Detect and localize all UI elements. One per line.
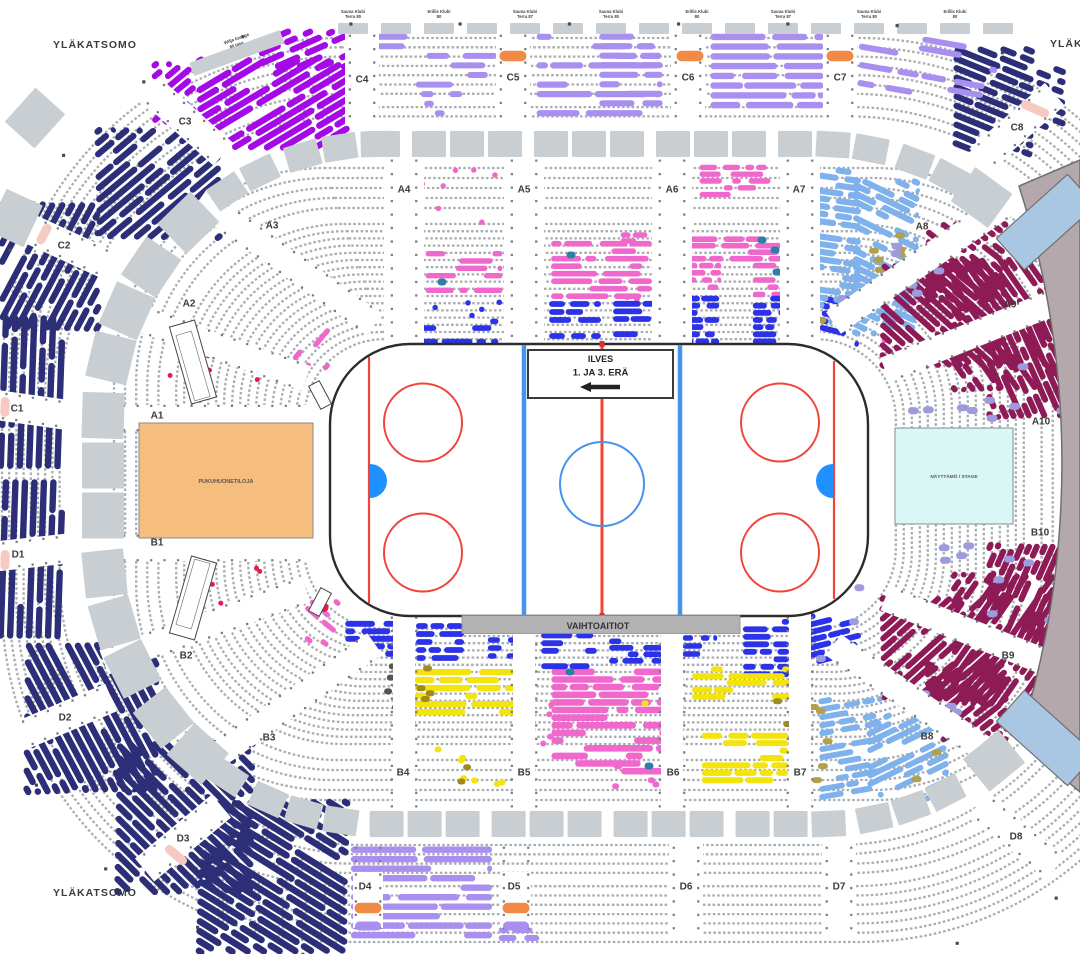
svg-text:D4: D4 bbox=[359, 882, 372, 893]
svg-text:D2: D2 bbox=[59, 713, 72, 724]
svg-text:D1: D1 bbox=[12, 550, 25, 561]
svg-text:D3: D3 bbox=[177, 834, 190, 845]
svg-text:C7: C7 bbox=[834, 73, 847, 84]
svg-text:D5: D5 bbox=[508, 882, 521, 893]
svg-text:A4: A4 bbox=[398, 185, 411, 196]
svg-text:C8: C8 bbox=[1011, 123, 1024, 134]
svg-text:D8: D8 bbox=[1010, 832, 1023, 843]
svg-text:C2: C2 bbox=[58, 241, 71, 252]
svg-text:VAIHTOAITIOT: VAIHTOAITIOT bbox=[567, 621, 630, 631]
svg-text:YLÄKATSOMO: YLÄKATSOMO bbox=[1050, 37, 1080, 50]
svg-text:Terra 80: Terra 80 bbox=[603, 14, 620, 19]
svg-text:Terra 87: Terra 87 bbox=[517, 14, 534, 19]
svg-text:1. JA 3. ERÄ: 1. JA 3. ERÄ bbox=[573, 368, 629, 379]
svg-text:B1: B1 bbox=[151, 538, 164, 549]
svg-text:YLÄKATSOMO: YLÄKATSOMO bbox=[53, 38, 137, 51]
svg-text:YLÄKATSOMO: YLÄKATSOMO bbox=[53, 886, 137, 899]
svg-text:A5: A5 bbox=[518, 185, 531, 196]
svg-text:B3: B3 bbox=[263, 733, 276, 744]
svg-text:B10: B10 bbox=[1031, 528, 1050, 539]
svg-text:Terra 80: Terra 80 bbox=[861, 14, 878, 19]
svg-text:A7: A7 bbox=[793, 185, 806, 196]
svg-text:C5: C5 bbox=[507, 73, 520, 84]
svg-text:C6: C6 bbox=[682, 73, 695, 84]
svg-text:C1: C1 bbox=[11, 404, 24, 415]
svg-text:ILVES: ILVES bbox=[588, 354, 613, 364]
svg-text:80: 80 bbox=[695, 14, 700, 19]
svg-text:A2: A2 bbox=[183, 299, 196, 310]
svg-text:NÄYTTÄMÖ / STAGE: NÄYTTÄMÖ / STAGE bbox=[930, 473, 978, 480]
svg-text:PUKUHUONETILOJA: PUKUHUONETILOJA bbox=[198, 479, 253, 485]
svg-text:A3: A3 bbox=[266, 221, 279, 232]
svg-text:A10: A10 bbox=[1032, 417, 1051, 428]
svg-text:B9: B9 bbox=[1002, 651, 1015, 662]
svg-text:80: 80 bbox=[437, 14, 442, 19]
svg-text:C3: C3 bbox=[179, 117, 192, 128]
svg-text:D6: D6 bbox=[680, 882, 693, 893]
svg-text:B4: B4 bbox=[397, 768, 410, 779]
svg-text:A9: A9 bbox=[1004, 300, 1017, 311]
svg-text:D7: D7 bbox=[833, 882, 846, 893]
svg-text:A6: A6 bbox=[666, 185, 679, 196]
svg-text:B2: B2 bbox=[180, 651, 193, 662]
svg-text:B8: B8 bbox=[921, 732, 934, 743]
svg-text:B7: B7 bbox=[794, 768, 807, 779]
svg-text:Terra 80: Terra 80 bbox=[345, 14, 362, 19]
svg-text:C4: C4 bbox=[356, 75, 369, 86]
svg-text:B5: B5 bbox=[518, 768, 531, 779]
svg-text:A1: A1 bbox=[151, 411, 164, 422]
svg-text:B6: B6 bbox=[667, 768, 680, 779]
svg-text:A8: A8 bbox=[916, 222, 929, 233]
svg-text:80: 80 bbox=[953, 14, 958, 19]
svg-text:Terra 87: Terra 87 bbox=[775, 14, 792, 19]
